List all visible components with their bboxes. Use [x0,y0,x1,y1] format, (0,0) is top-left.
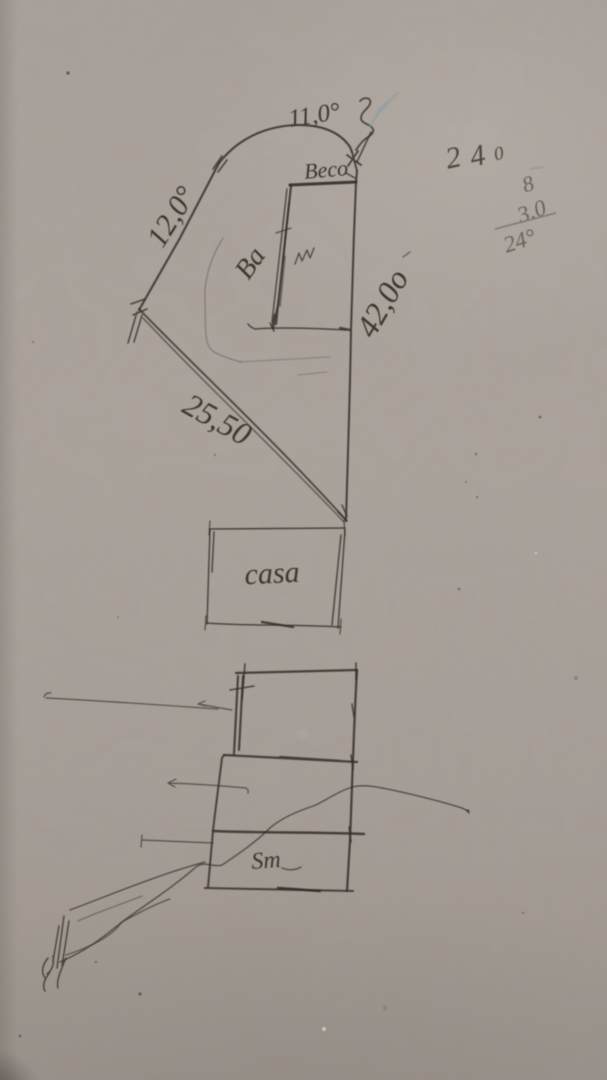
svg-text:8: 8 [519,170,537,197]
svg-text:12,0°: 12,0° [140,181,202,253]
svg-text:Ba: Ba [229,242,272,285]
svg-text:casa: casa [244,556,301,592]
svg-text:Sm: Sm [251,847,282,875]
svg-text:2: 2 [442,140,464,175]
svg-text:4: 4 [467,138,489,173]
svg-text:Beco: Beco [303,155,349,184]
svg-text:11,0°: 11,0° [286,98,341,133]
svg-text:42,0o: 42,0o [348,263,415,343]
svg-text:0: 0 [492,143,506,166]
svg-text:25,50: 25,50 [177,386,257,452]
svg-text:24°: 24° [500,224,538,258]
